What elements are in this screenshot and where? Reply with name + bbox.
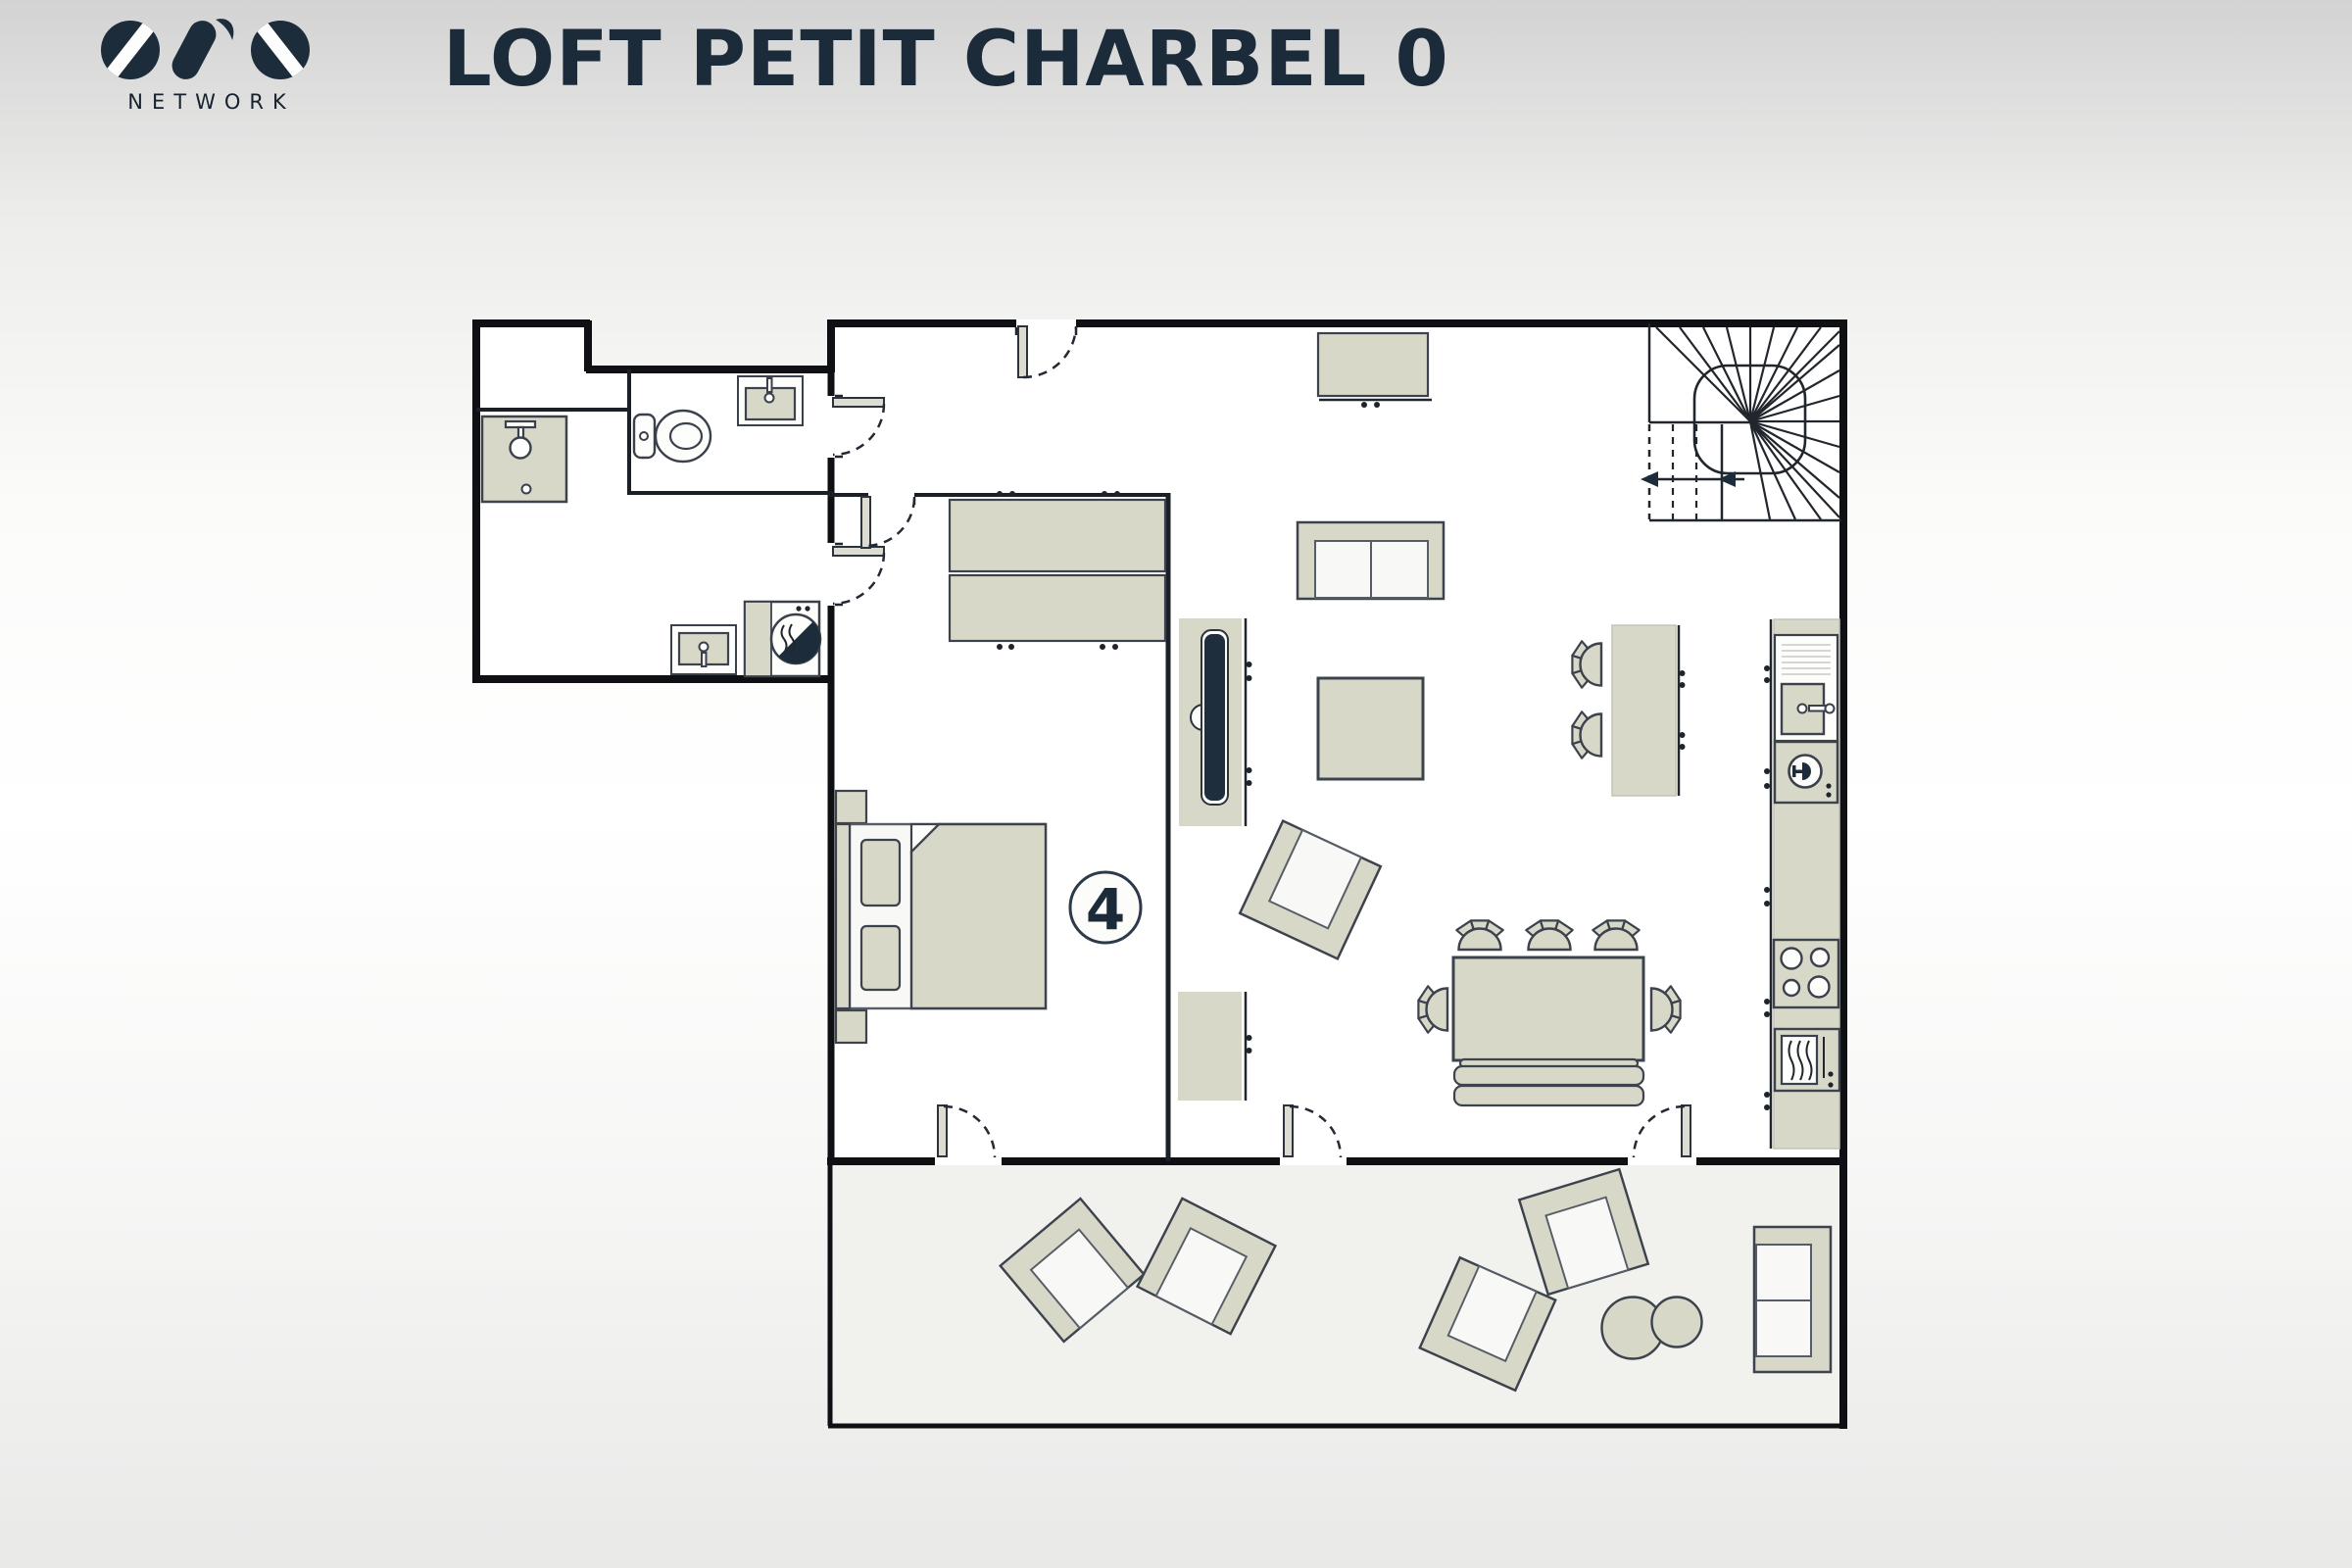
dining-chair [1651, 986, 1681, 1032]
oven [1775, 1029, 1839, 1091]
wardrobe [950, 491, 1165, 650]
terrace-sofa [1754, 1227, 1831, 1372]
dining-chair [1592, 920, 1639, 950]
shower [482, 416, 566, 502]
hob [1774, 940, 1838, 1007]
coffee-table [1318, 678, 1423, 779]
terrace [828, 1165, 1845, 1426]
dining-chair [1456, 920, 1502, 950]
kitchen-island [1612, 625, 1686, 796]
dining-table [1453, 957, 1643, 1060]
nightstand [836, 1010, 866, 1043]
double-bed [836, 824, 1046, 1008]
sideboard [1178, 992, 1252, 1101]
bar-stool [1572, 711, 1601, 758]
floor-plan: 4 [0, 0, 2352, 1568]
bar-stool [1572, 641, 1601, 687]
utility-washbasin [671, 625, 736, 674]
dishwasher [1775, 742, 1837, 803]
washing-machine [745, 602, 820, 676]
bedroom-capacity-badge: 4 [1070, 872, 1141, 943]
floor-plan-page: { "header": { "logo_text": "OVO", "logo_… [0, 0, 2352, 1568]
toilet [634, 411, 710, 462]
wall-cabinet [1318, 333, 1432, 408]
dining-chair [1418, 986, 1447, 1032]
capacity-number: 4 [1086, 876, 1125, 943]
dining-chair [1526, 920, 1572, 950]
sofa [1298, 522, 1444, 599]
wc-washbasin [738, 376, 803, 425]
nightstand [836, 791, 866, 823]
kitchen-sink [1775, 635, 1837, 741]
dining-bench [1454, 1059, 1643, 1105]
